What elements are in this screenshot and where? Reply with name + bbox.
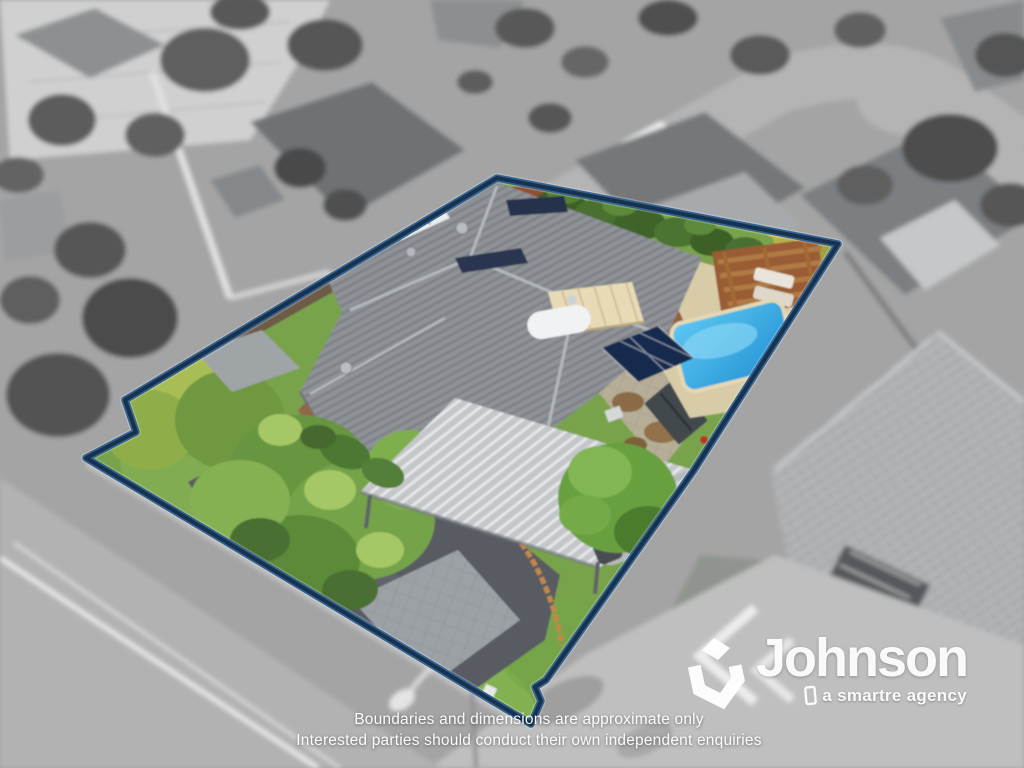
agency-logo: Johnson a smartre agency [684, 633, 967, 717]
disclaimer: Boundaries and dimensions are approximat… [34, 709, 1024, 752]
listing-photo: Johnson a smartre agency Boundaries and … [0, 0, 1024, 768]
satellite-dish [567, 295, 577, 305]
brand-tagline-text: a smartre agency [822, 686, 967, 706]
disclaimer-line-1: Boundaries and dimensions are approximat… [34, 709, 1024, 730]
brand-tagline: a smartre agency [804, 685, 967, 706]
smartre-door-icon [804, 685, 817, 706]
brand-name: Johnson [756, 633, 967, 684]
disclaimer-line-2: Interested parties should conduct their … [34, 730, 1024, 751]
johnson-logo-icon [684, 635, 748, 717]
